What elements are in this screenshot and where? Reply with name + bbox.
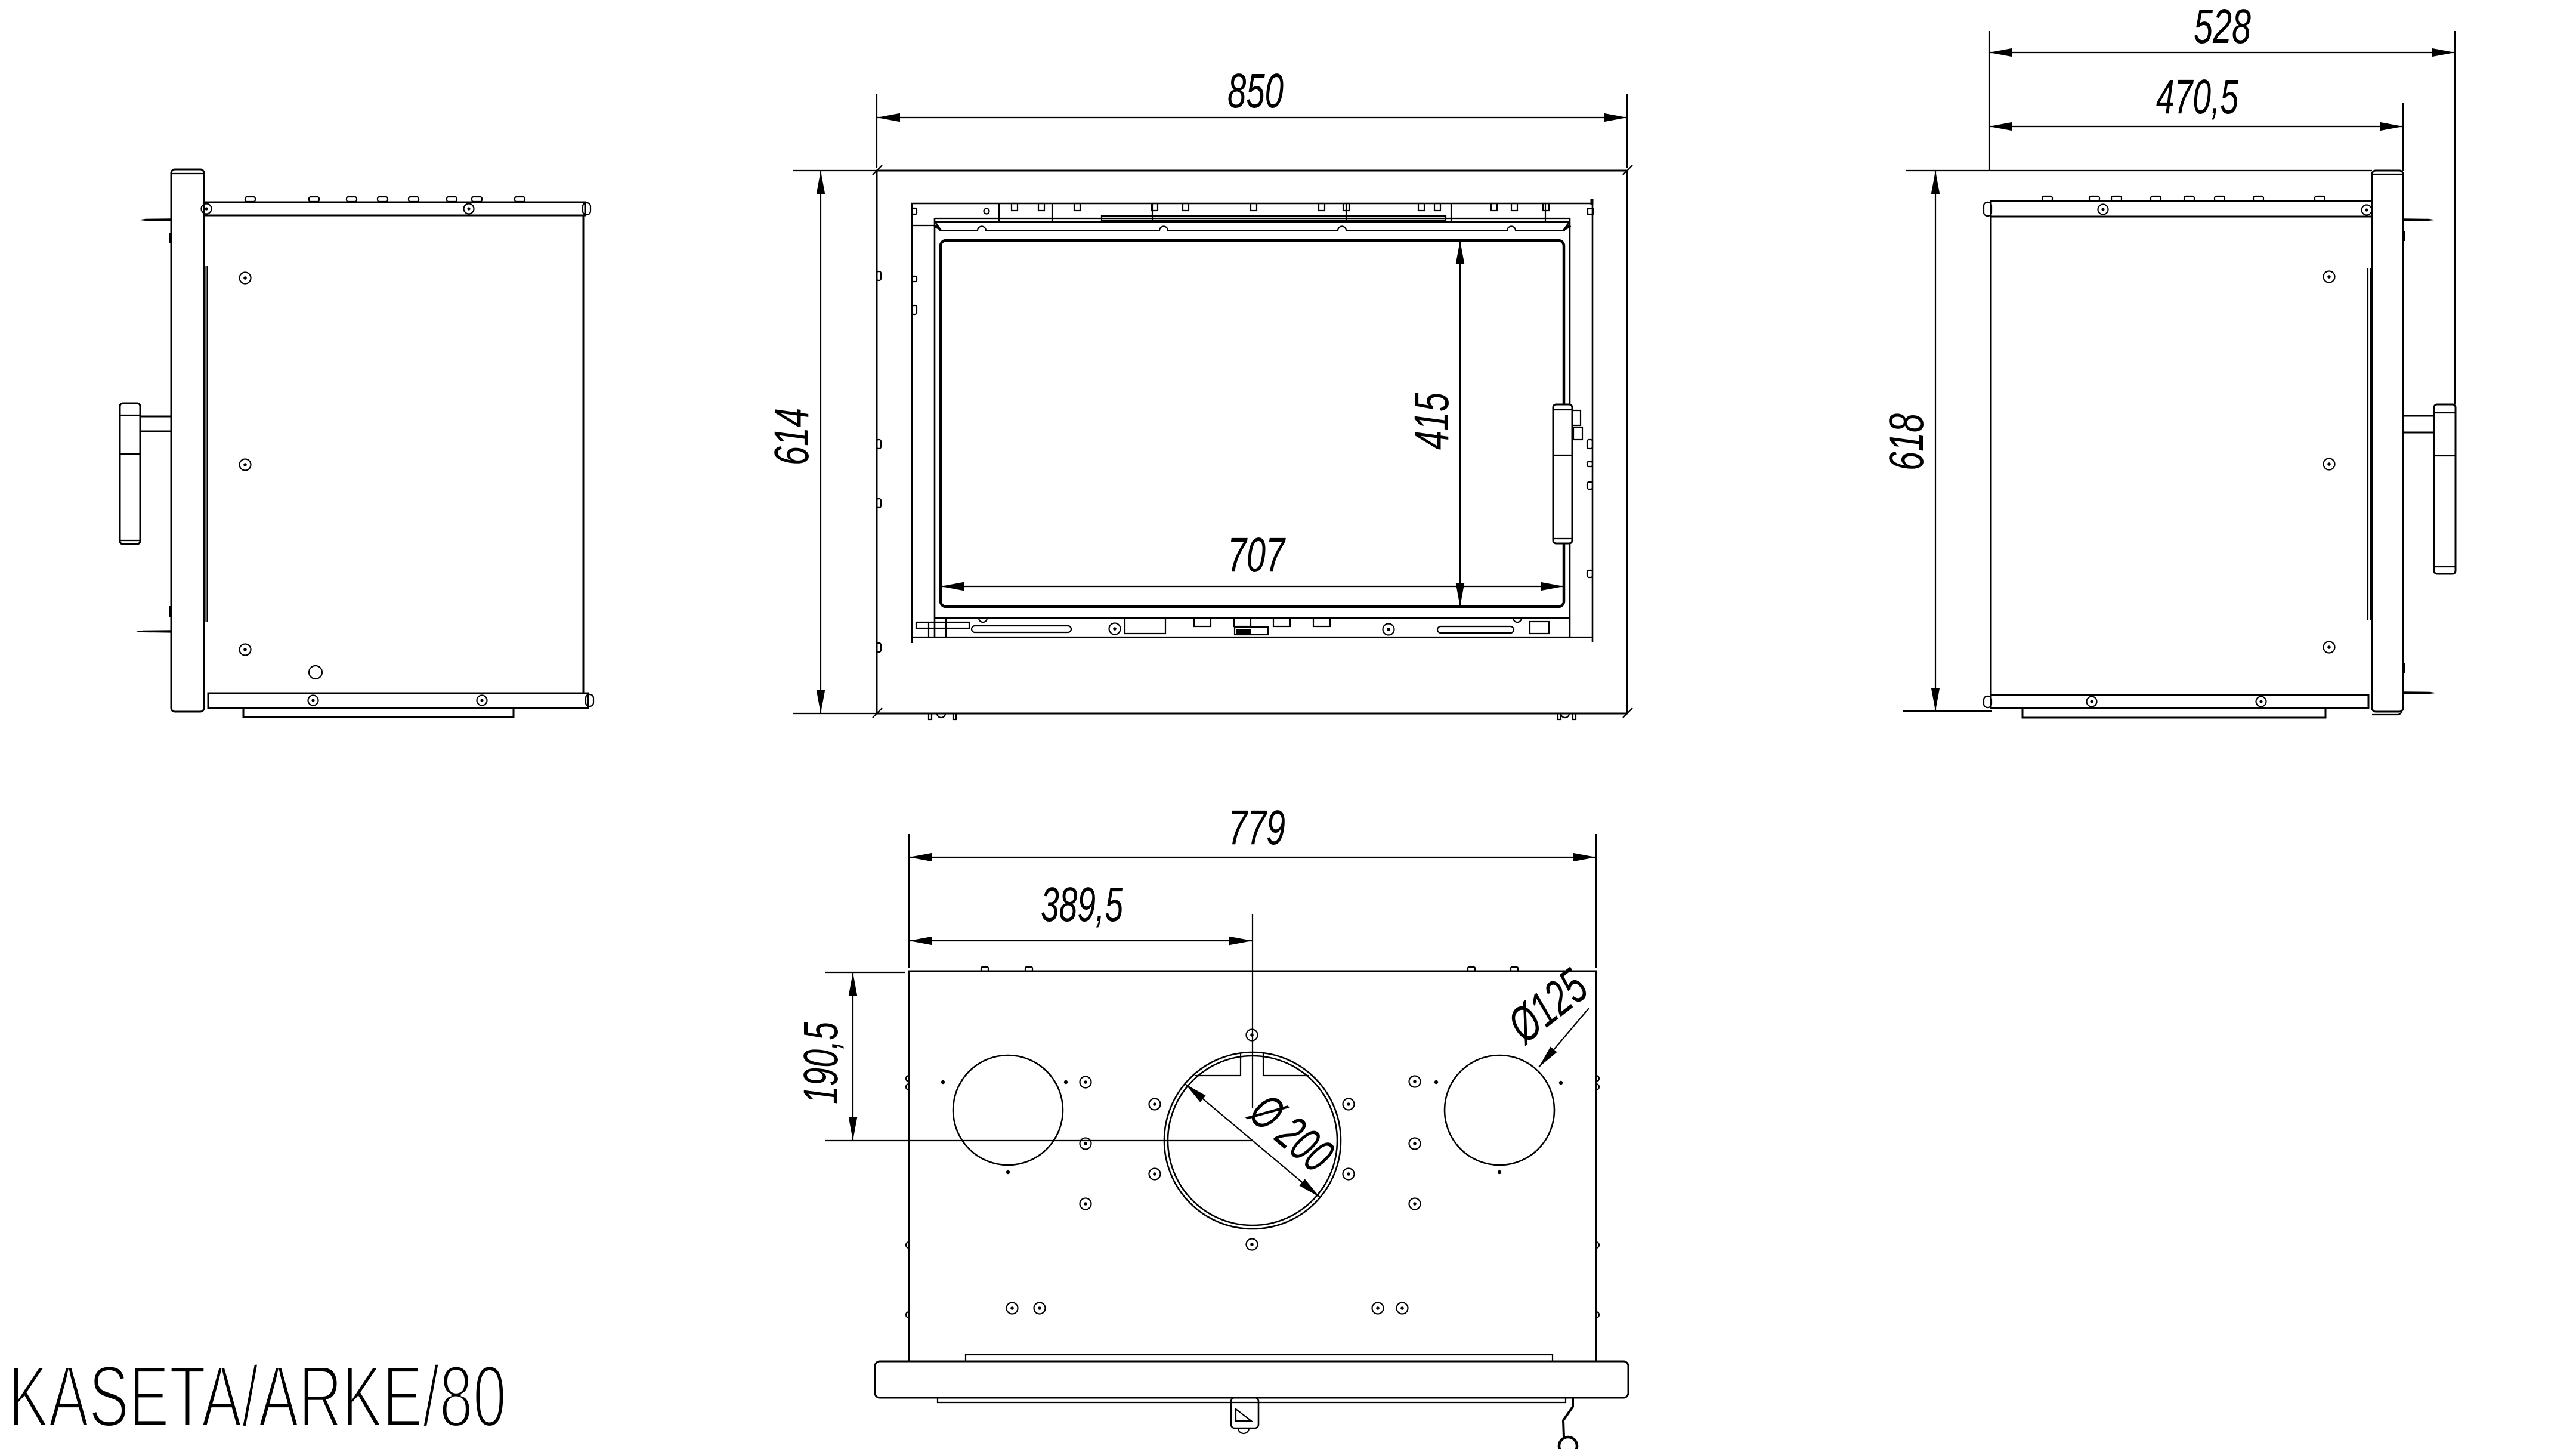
svg-text:707: 707 [1227,528,1286,582]
svg-text:779: 779 [1228,801,1285,855]
svg-text:415: 415 [1405,393,1459,450]
svg-text:618: 618 [1879,413,1934,471]
svg-text:614: 614 [765,408,819,465]
svg-text:850: 850 [1227,64,1284,118]
svg-text:389,5: 389,5 [1041,878,1123,932]
svg-text:470,5: 470,5 [2156,70,2238,124]
svg-text:528: 528 [2194,0,2251,54]
svg-text:KASETA/ARKE/80: KASETA/ARKE/80 [8,1348,506,1445]
svg-text:190,5: 190,5 [794,1022,848,1104]
